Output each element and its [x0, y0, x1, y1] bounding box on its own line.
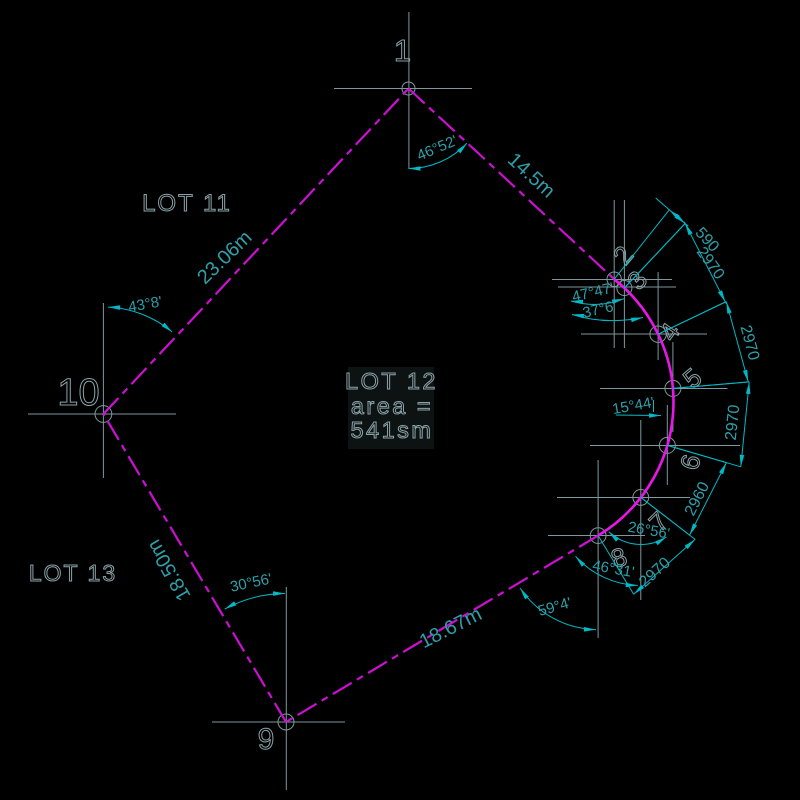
- svg-text:10: 10: [57, 372, 99, 414]
- svg-text:541sm: 541sm: [350, 417, 433, 443]
- svg-text:1: 1: [394, 33, 411, 68]
- svg-text:LOT 13: LOT 13: [29, 560, 117, 586]
- svg-text:LOT 11: LOT 11: [142, 190, 232, 217]
- svg-text:area =: area =: [351, 393, 433, 419]
- svg-text:9: 9: [258, 723, 275, 756]
- svg-text:LOT 12: LOT 12: [345, 368, 438, 394]
